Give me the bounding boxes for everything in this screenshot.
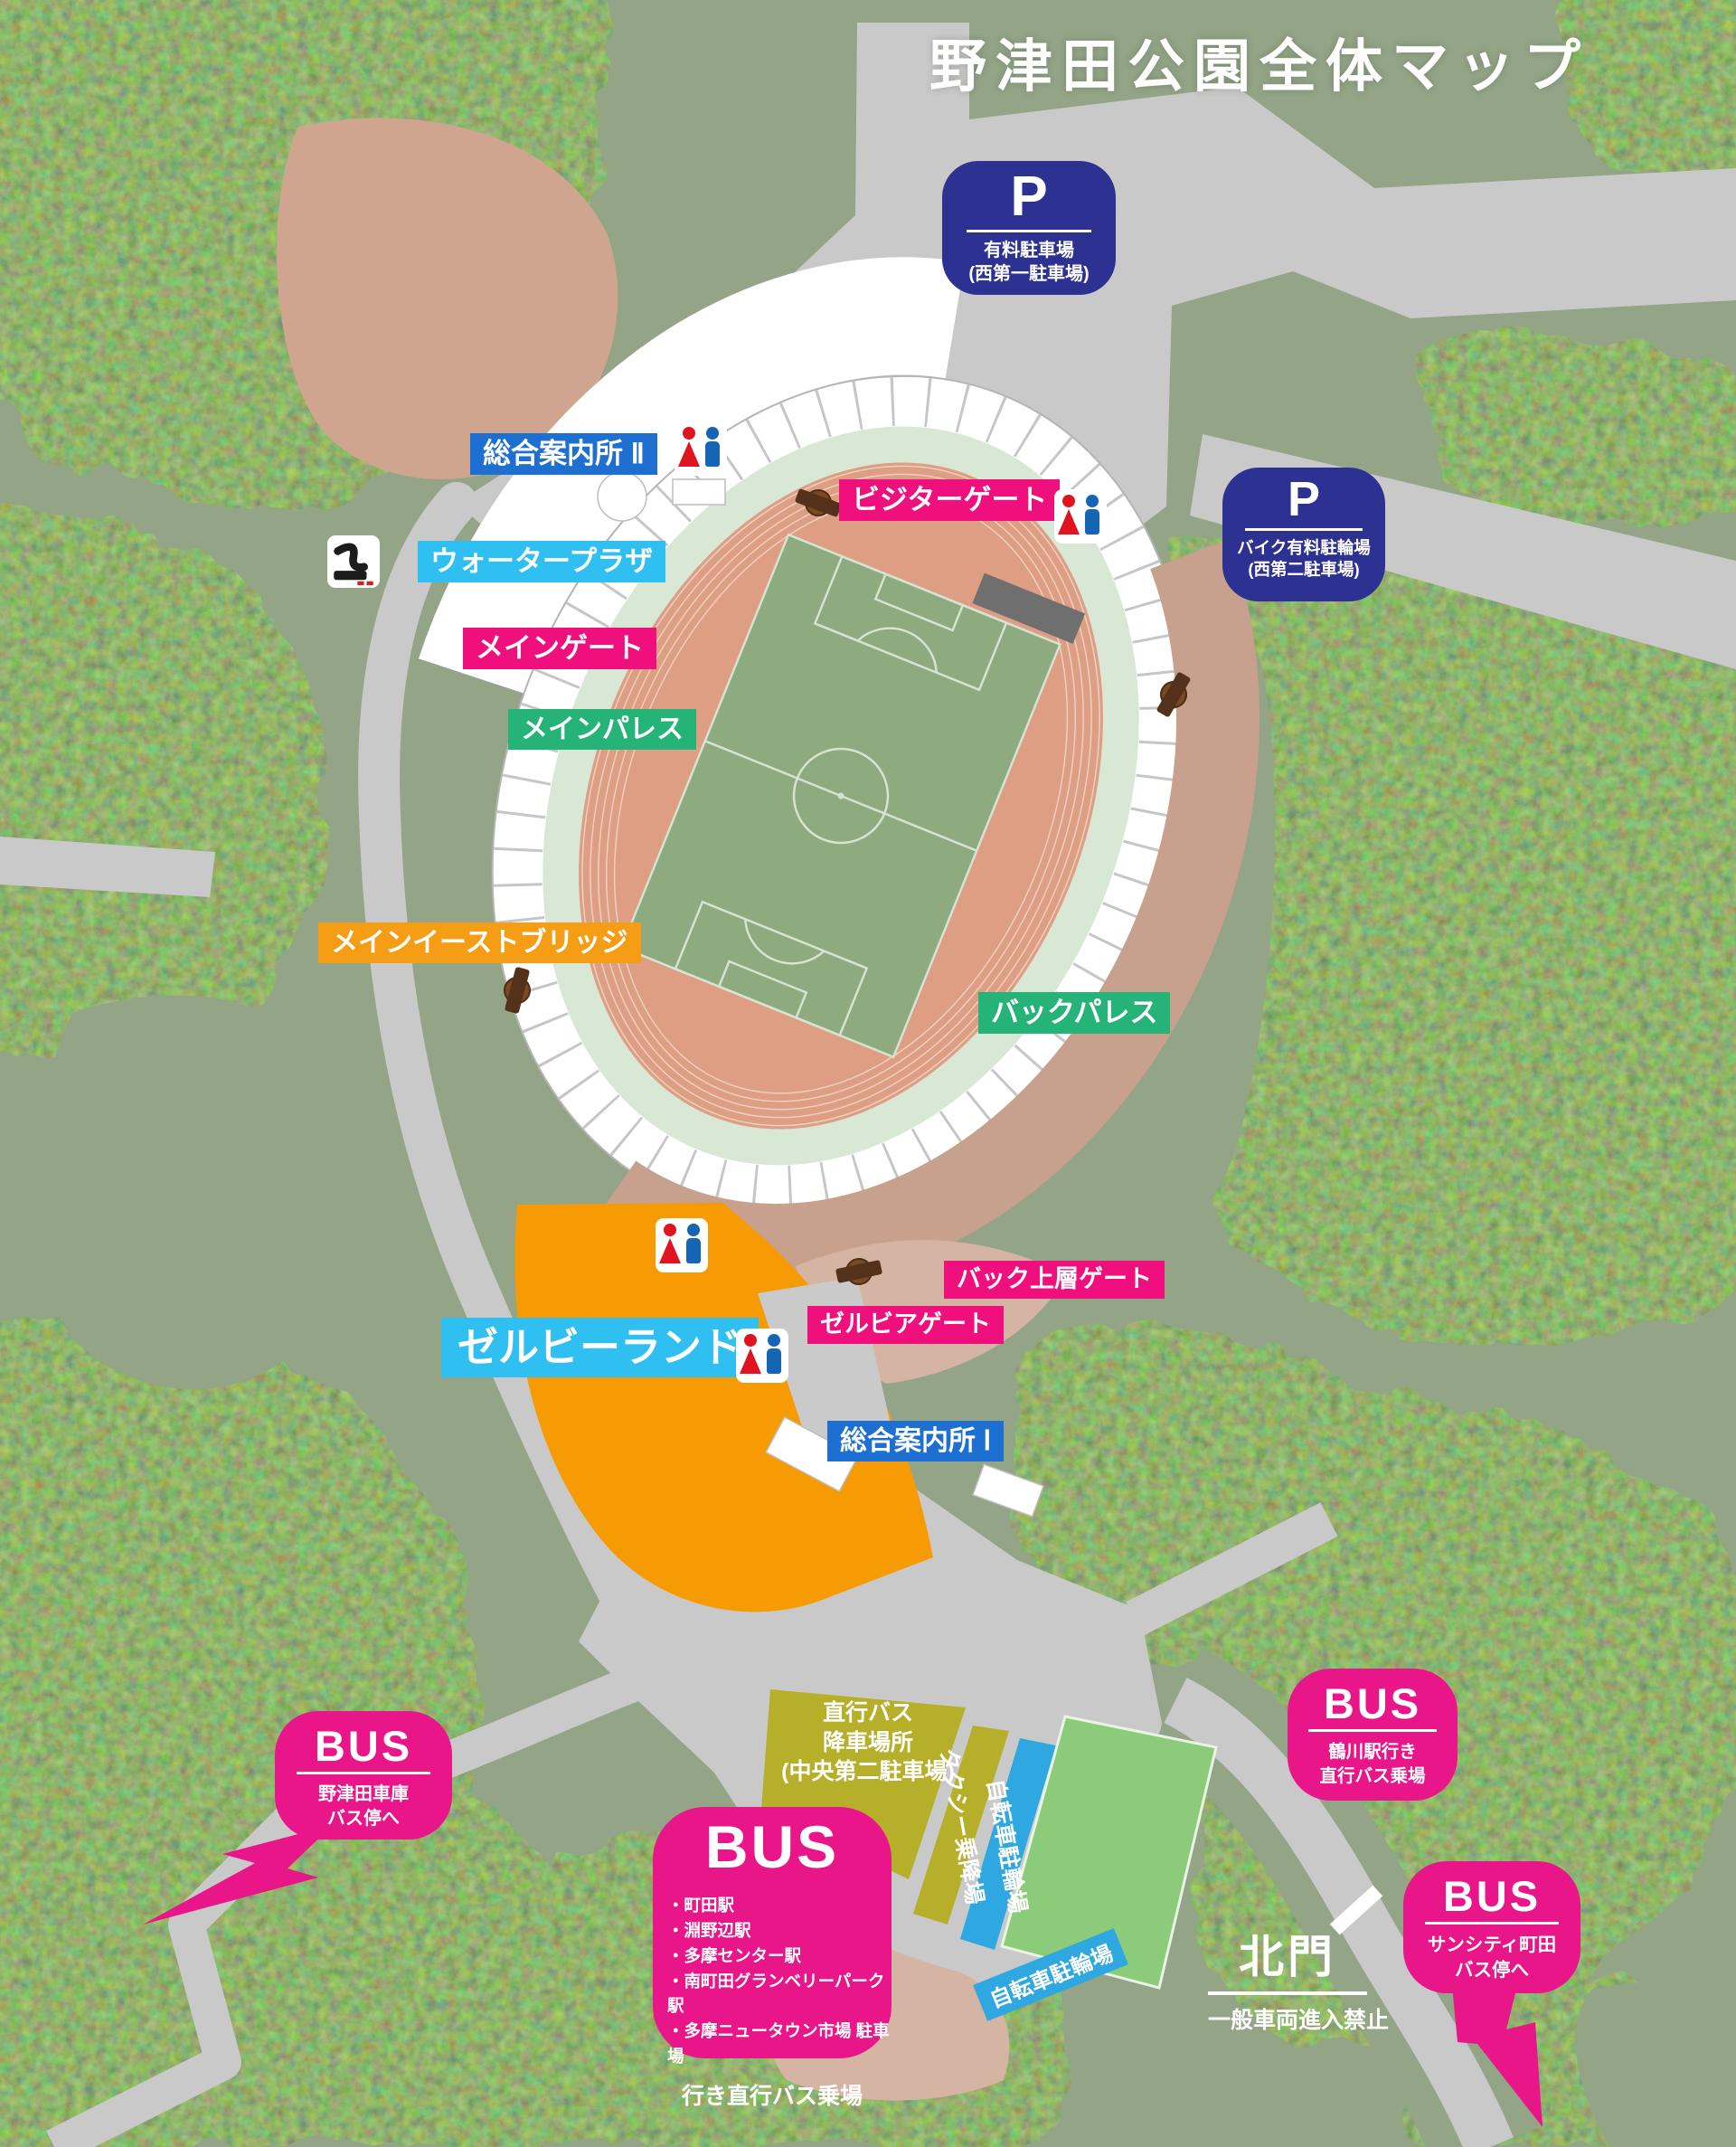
parking-west2-line2: (西第二駐車場) (1237, 559, 1371, 581)
label-zelvy-land: ゼルビーランド (441, 1318, 759, 1377)
parking-west1-line1: 有料駐車場 (968, 239, 1089, 262)
parking-icon: P (1010, 166, 1047, 228)
bus-badge-nozuta-depot: BUS 野津田車庫 バス停へ (275, 1711, 452, 1840)
parking-badge-west2: P バイク有料駐輪場 (西第二駐車場) (1222, 468, 1385, 601)
bus-word: BUS (1443, 1874, 1541, 1918)
label-water-plaza: ウォータープラザ (418, 541, 665, 582)
label-info-center-1: 総合案内所 Ⅰ (827, 1421, 1004, 1461)
parking-icon: P (1288, 473, 1320, 526)
label-main-gate: メインゲート (463, 628, 656, 669)
label-main-palace: メインパレス (508, 709, 696, 750)
restroom-icon (656, 1218, 708, 1272)
restroom-icon (736, 1329, 788, 1383)
label-visitor-gate: ビジターゲート (839, 479, 1060, 521)
bus-badge-suncity: BUS サンシティ町田 バス停へ (1403, 1861, 1580, 1993)
label-zelvia-gate: ゼルビアゲート (807, 1306, 1004, 1344)
north-gate-name: 北門 (1208, 1921, 1367, 1986)
parking-badge-west1: P 有料駐車場 (西第一駐車場) (942, 161, 1116, 295)
parking-west2-line1: バイク有料駐輪場 (1237, 537, 1371, 559)
restroom-icon (675, 421, 727, 476)
label-info-center-2: 総合案内所 Ⅱ (470, 433, 657, 475)
bus-badge-tsurukawa: BUS 鶴川駅行き 直行バス乗場 (1288, 1669, 1458, 1801)
label-back-palace: バックパレス (978, 992, 1170, 1034)
parking-west1-line2: (西第一駐車場) (968, 262, 1089, 286)
bus-footer: 行き直行バス乗場 (682, 2078, 863, 2111)
label-main-east-bridge: メインイーストブリッジ (318, 922, 641, 963)
label-back-upper-gate: バック上層ゲート (944, 1261, 1165, 1299)
bus-word: BUS (705, 1816, 839, 1878)
bus-word: BUS (315, 1724, 412, 1768)
bus-destination-list: 町田駅 淵野辺駅 多摩センター駅 南町田グランベリーパーク駅 多摩ニュータウン市… (653, 1893, 892, 2068)
smoking-area-icon (327, 535, 380, 588)
page-title: 野津田公園全体マップ (929, 36, 1590, 99)
bus-word: BUS (1324, 1681, 1421, 1726)
bus-badge-main-terminal: BUS 町田駅 淵野辺駅 多摩センター駅 南町田グランベリーパーク駅 多摩ニュー… (653, 1807, 892, 2058)
north-gate-label: 北門 一般車両進入禁止 (1208, 1921, 1367, 2035)
park-overall-map: 野津田公園全体マップ P 有料駐車場 (西第一駐車場) P バイク有料駐輪場 (… (0, 0, 1736, 2147)
north-gate-note: 一般車両進入禁止 (1208, 2002, 1367, 2035)
restroom-icon (1054, 489, 1107, 544)
